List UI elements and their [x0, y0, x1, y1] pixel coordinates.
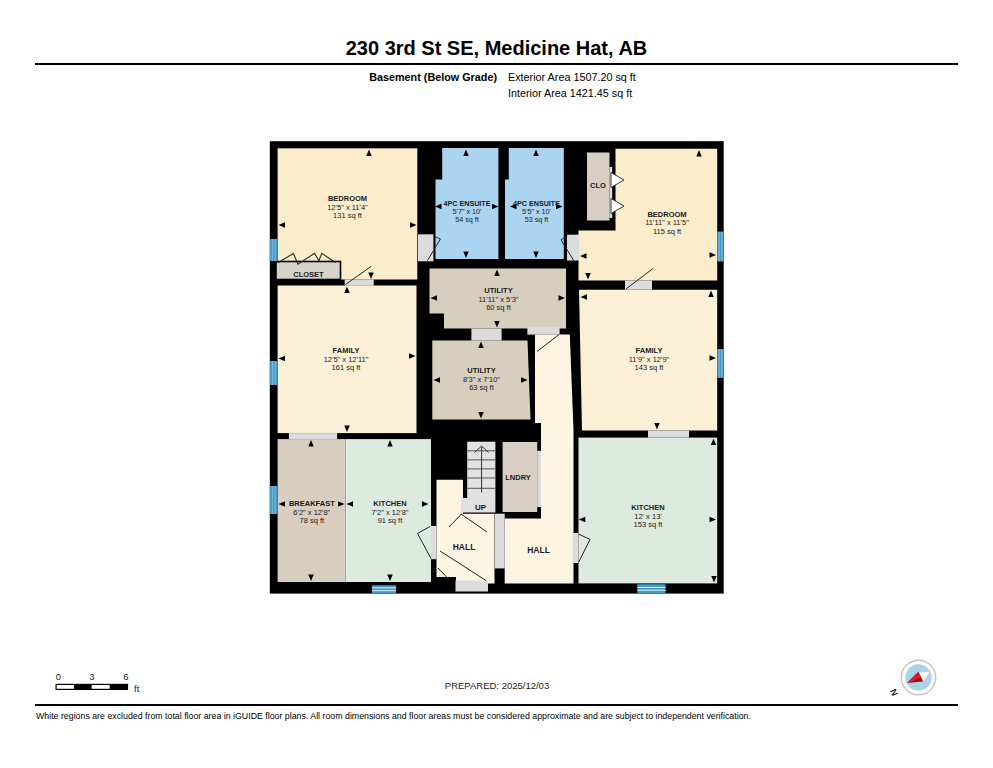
- svg-text:CLOSET: CLOSET: [293, 270, 324, 279]
- svg-text:N: N: [888, 687, 900, 697]
- svg-text:131 sq ft: 131 sq ft: [333, 211, 363, 220]
- svg-text:ft: ft: [134, 683, 140, 694]
- svg-text:CLO: CLO: [590, 181, 606, 190]
- svg-text:143 sq ft: 143 sq ft: [635, 363, 665, 372]
- svg-text:LNDRY: LNDRY: [505, 473, 531, 482]
- svg-text:115 sq ft: 115 sq ft: [653, 227, 682, 236]
- svg-text:0: 0: [56, 671, 61, 682]
- svg-text:3: 3: [89, 671, 94, 682]
- svg-text:54 sq ft: 54 sq ft: [455, 215, 479, 224]
- svg-text:UP: UP: [475, 503, 487, 512]
- svg-text:60 sq ft: 60 sq ft: [486, 303, 512, 312]
- svg-text:91 sq ft: 91 sq ft: [378, 516, 404, 525]
- svg-text:63 sq ft: 63 sq ft: [469, 383, 495, 392]
- svg-text:6: 6: [123, 671, 128, 682]
- svg-text:HALL: HALL: [527, 545, 550, 555]
- svg-text:HALL: HALL: [453, 542, 476, 552]
- svg-text:78 sq ft: 78 sq ft: [299, 516, 325, 525]
- svg-text:161 sq ft: 161 sq ft: [332, 363, 362, 372]
- svg-text:53 sq ft: 53 sq ft: [525, 215, 549, 224]
- svg-text:PREPARED: 2025/12/03: PREPARED: 2025/12/03: [445, 680, 549, 691]
- svg-text:153 sq ft: 153 sq ft: [634, 520, 664, 529]
